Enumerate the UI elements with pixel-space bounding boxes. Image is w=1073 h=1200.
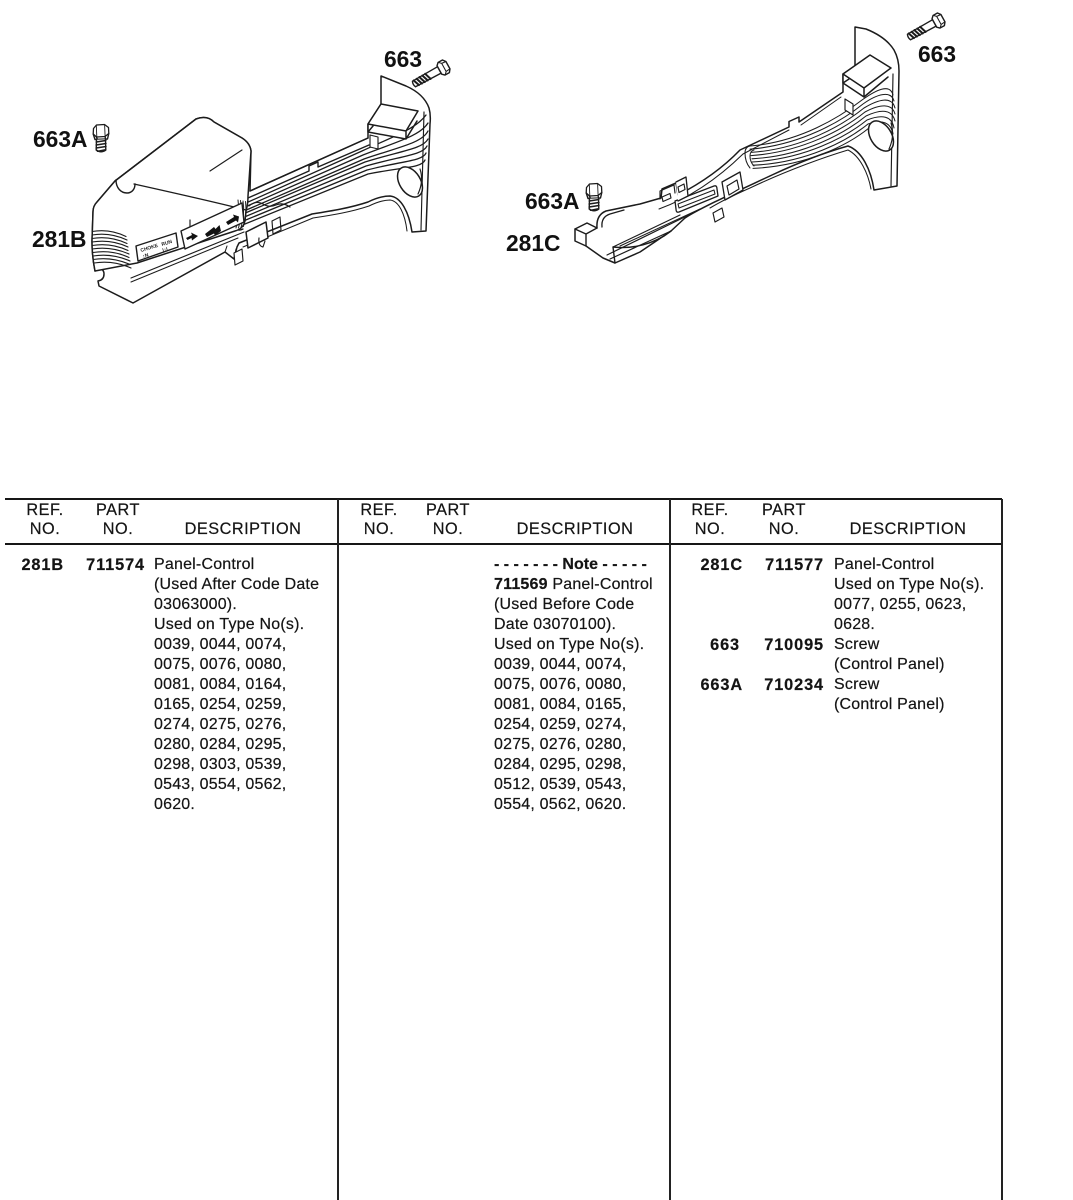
svg-text:281C: 281C [506, 230, 561, 256]
svg-text:663A: 663A [525, 188, 580, 214]
svg-text:663A: 663A [33, 126, 88, 152]
svg-text:663: 663 [918, 41, 956, 67]
svg-text:663: 663 [384, 46, 422, 72]
svg-text:281B: 281B [32, 226, 87, 252]
